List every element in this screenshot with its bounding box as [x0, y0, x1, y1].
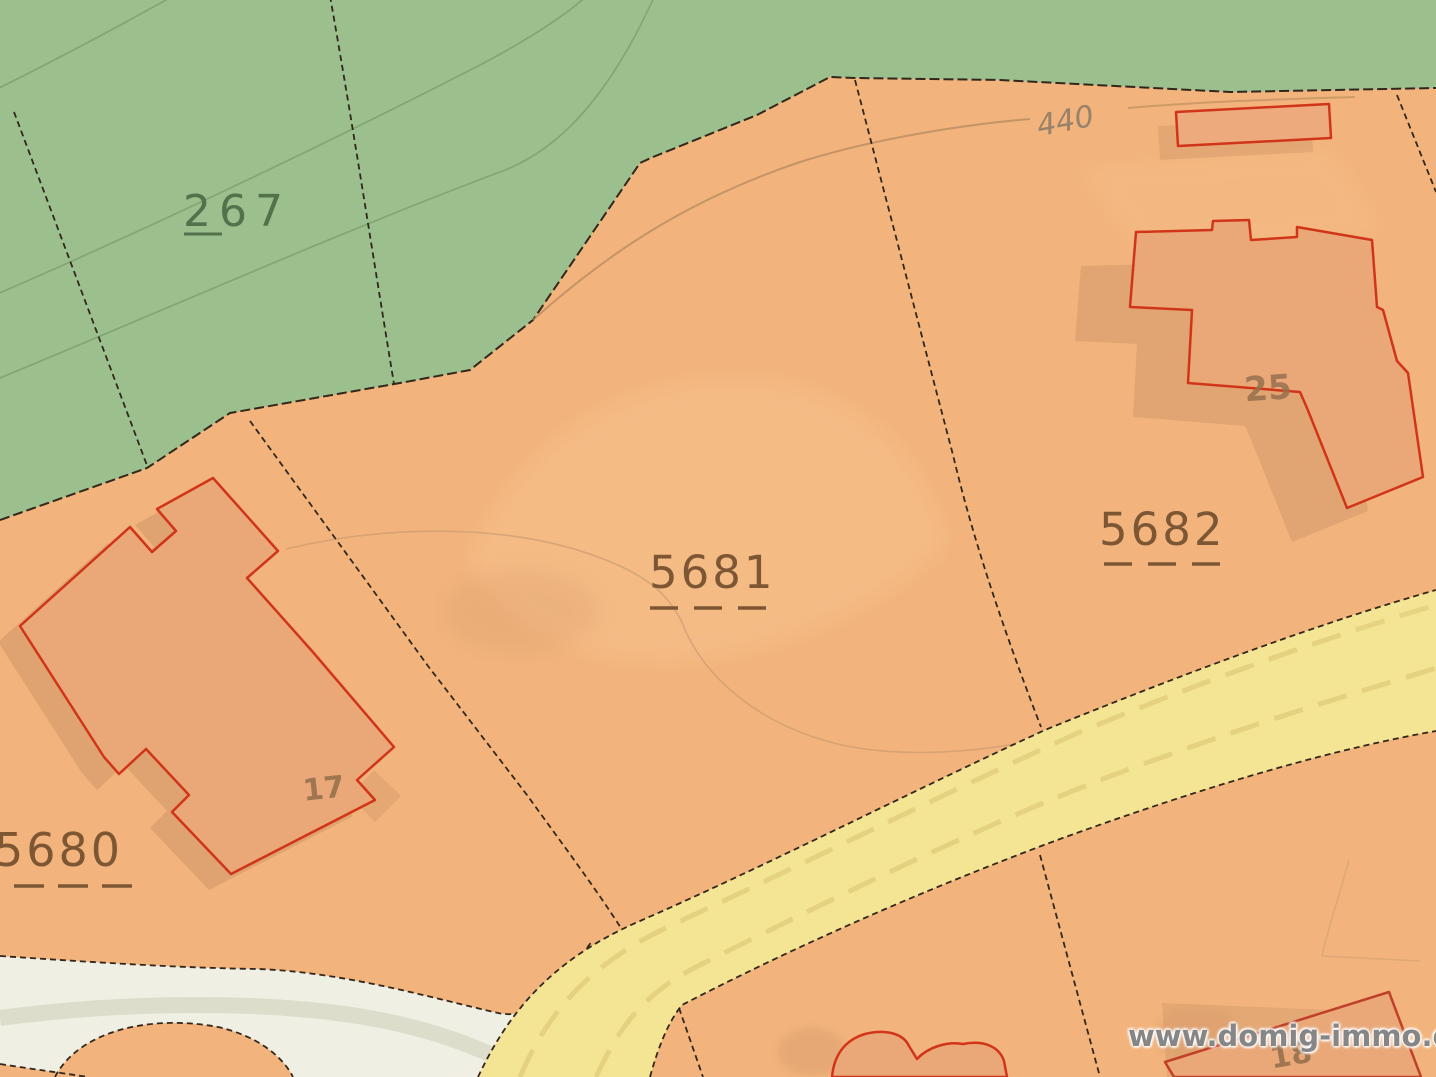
parcel-label-5680: 5680 [0, 823, 123, 877]
map-canvas[interactable]: 267 5681 5682 5680 17 25 18 440 www.domi… [0, 0, 1436, 1077]
house-number-25: 25 [1243, 367, 1293, 410]
parcel-label-5682: 5682 [1099, 503, 1226, 556]
cadastral-map[interactable]: 267 5681 5682 5680 17 25 18 440 www.domi… [0, 0, 1436, 1077]
parcel-label-5681: 5681 [649, 546, 776, 599]
parcel-label-267: 267 [183, 186, 291, 237]
watermark-text: www.domig-immo.eu [1128, 1019, 1436, 1053]
tree-shadow [442, 570, 598, 654]
small-building-footprint [1176, 104, 1331, 146]
house-number-17: 17 [301, 770, 346, 809]
